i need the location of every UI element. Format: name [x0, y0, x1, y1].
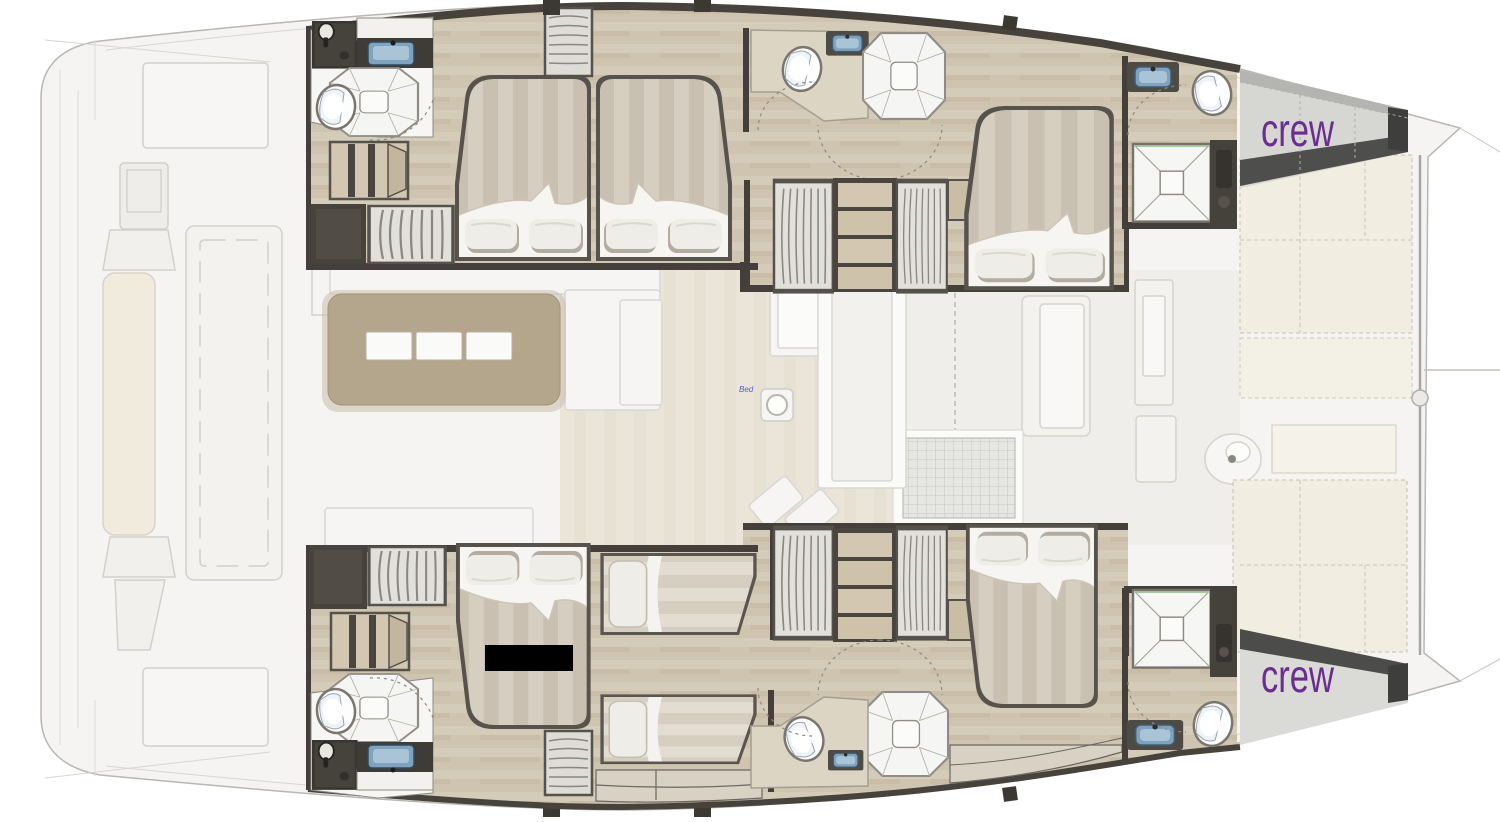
- svg-text:crew: crew: [1261, 104, 1335, 156]
- svg-text:Bed: Bed: [739, 385, 754, 394]
- svg-text:crew: crew: [1261, 650, 1335, 702]
